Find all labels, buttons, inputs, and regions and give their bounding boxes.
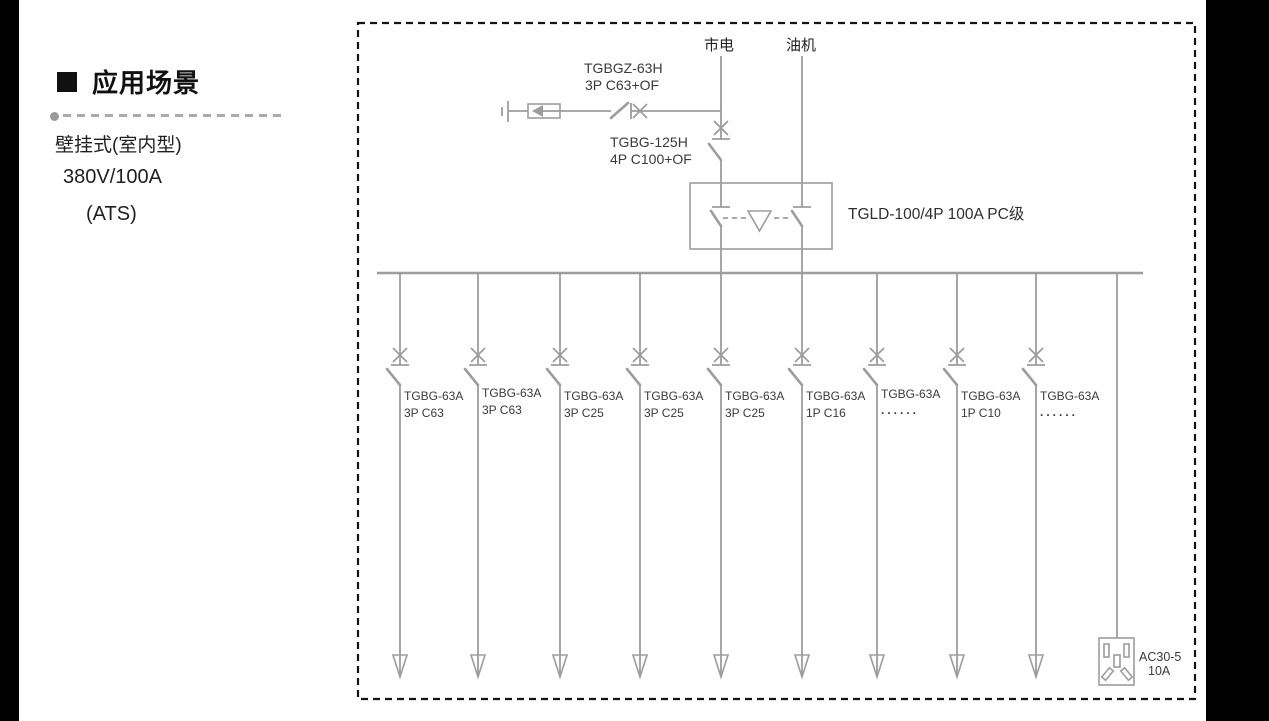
- branch-model-label: TGBG-63A: [1040, 389, 1099, 403]
- generator-source-label: 油机: [786, 37, 816, 54]
- branch-spec-label: 1P C16: [806, 406, 846, 420]
- mains-feeder-wire: [709, 56, 730, 207]
- branch-spec-label: 3P C25: [564, 406, 604, 420]
- branch-spec-label: ......: [1040, 405, 1078, 419]
- single-line-diagram: 市电 油机 TGBGZ-63H 3P C63+OF TGBG-125H 4P C…: [0, 0, 1269, 721]
- spd-arrow-icon: [532, 105, 543, 117]
- branch-model-label: TGBG-63A: [806, 389, 865, 403]
- branch-model-label: TGBG-63A: [881, 387, 940, 401]
- ats-model-label: TGLD-100/4P 100A PC级: [848, 205, 1024, 223]
- branch-model-label: TGBG-63A: [725, 389, 784, 403]
- branch-circuit-3: TGBG-63A 3P C25: [547, 273, 623, 677]
- interlock-triangle-icon: [748, 211, 771, 231]
- branch-spec-label: 3P C25: [644, 406, 684, 420]
- branch-spec-label: 3P C63: [482, 403, 522, 417]
- branch-model-label: TGBG-63A: [564, 389, 623, 403]
- socket-branch: AC30-5 10A: [1099, 273, 1181, 685]
- socket-outlet-icon: [1099, 638, 1134, 685]
- surge-breaker-blade-icon: [611, 103, 628, 118]
- branch-circuit-5: TGBG-63A 3P C25: [708, 273, 784, 677]
- branch-model-label: TGBG-63A: [961, 389, 1020, 403]
- branch-model-label: TGBG-63A: [404, 389, 463, 403]
- branch-circuit-9: TGBG-63A ......: [1023, 273, 1099, 677]
- socket-rating-label: 10A: [1148, 664, 1171, 678]
- branch-circuit-8: TGBG-63A 1P C10: [944, 273, 1020, 677]
- surge-breaker-model-label: TGBGZ-63H: [584, 60, 663, 76]
- branch-circuit-7: TGBG-63A ......: [864, 273, 940, 677]
- mains-source-label: 市电: [704, 37, 734, 54]
- branch-spec-label: 1P C10: [961, 406, 1001, 420]
- surge-breaker-spec-label: 3P C63+OF: [585, 77, 659, 93]
- branch-model-label: TGBG-63A: [644, 389, 703, 403]
- branch-spec-label: 3P C63: [404, 406, 444, 420]
- branch-circuit-1: TGBG-63A 3P C63: [387, 273, 463, 677]
- socket-model-label: AC30-5: [1139, 650, 1181, 664]
- surge-protection-branch: [502, 101, 721, 122]
- branch-circuit-6: TGBG-63A 1P C16: [789, 273, 865, 677]
- branch-circuit-4: TGBG-63A 3P C25: [627, 273, 703, 677]
- branch-spec-label: 3P C25: [725, 406, 765, 420]
- branch-spec-label: ......: [881, 403, 919, 417]
- branch-model-label: TGBG-63A: [482, 386, 541, 400]
- ats-switch-box: [690, 183, 832, 273]
- incoming-breaker-model-label: TGBG-125H: [610, 134, 688, 150]
- incoming-breaker-spec-label: 4P C100+OF: [610, 151, 692, 167]
- branch-circuit-2: TGBG-63A 3P C63: [465, 273, 541, 677]
